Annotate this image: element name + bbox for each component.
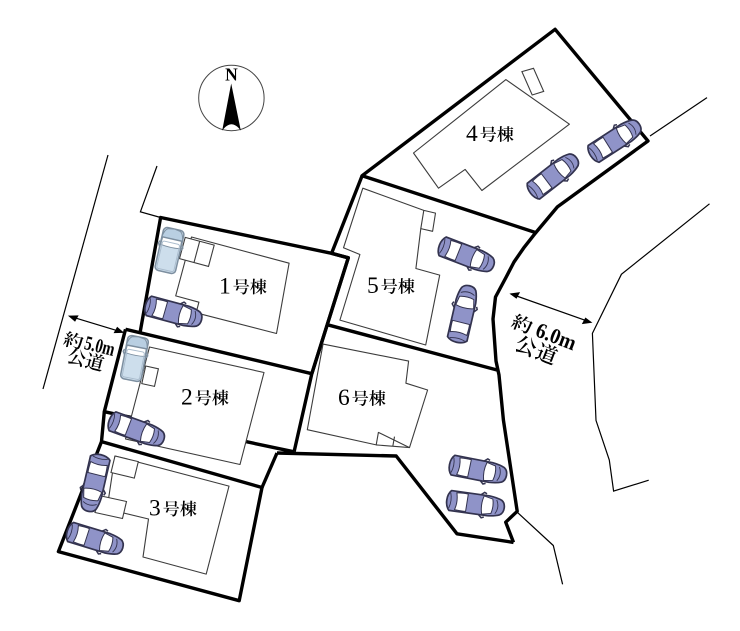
svg-text:5: 5 <box>367 273 379 299</box>
svg-text:4: 4 <box>466 121 478 147</box>
svg-text:3: 3 <box>149 496 161 522</box>
svg-text:1: 1 <box>219 274 231 300</box>
svg-text:6: 6 <box>338 385 350 411</box>
svg-text:N: N <box>225 65 238 85</box>
svg-text:2: 2 <box>181 385 193 411</box>
